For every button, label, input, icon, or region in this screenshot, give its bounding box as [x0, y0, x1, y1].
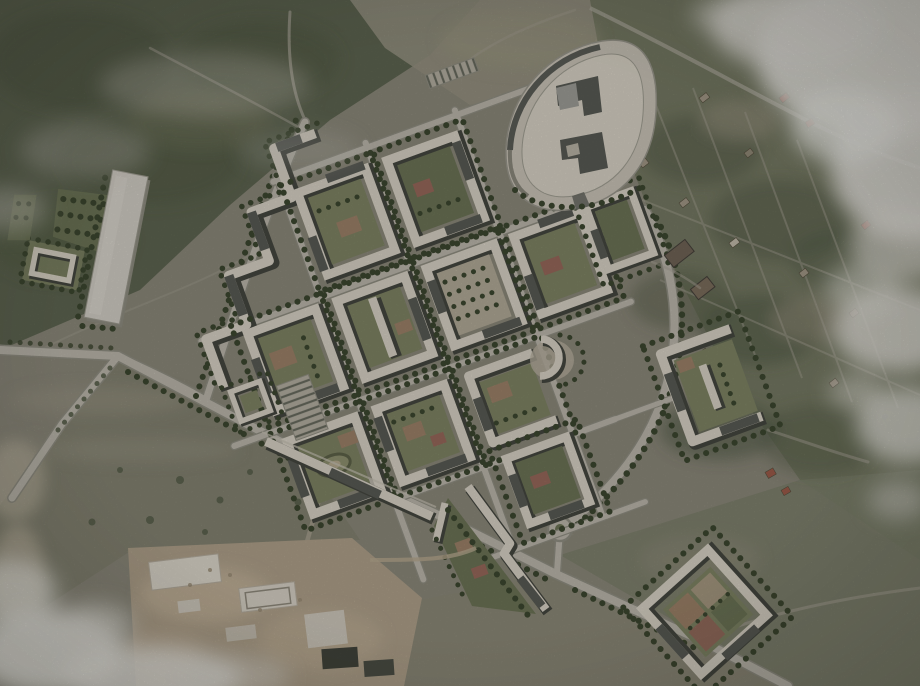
satellite-map: Aerial satellite photograph of countrysi… [0, 0, 920, 686]
masterplan-aerial-view: Aerial satellite photograph of countrysi… [0, 0, 920, 686]
vignette [0, 0, 920, 686]
